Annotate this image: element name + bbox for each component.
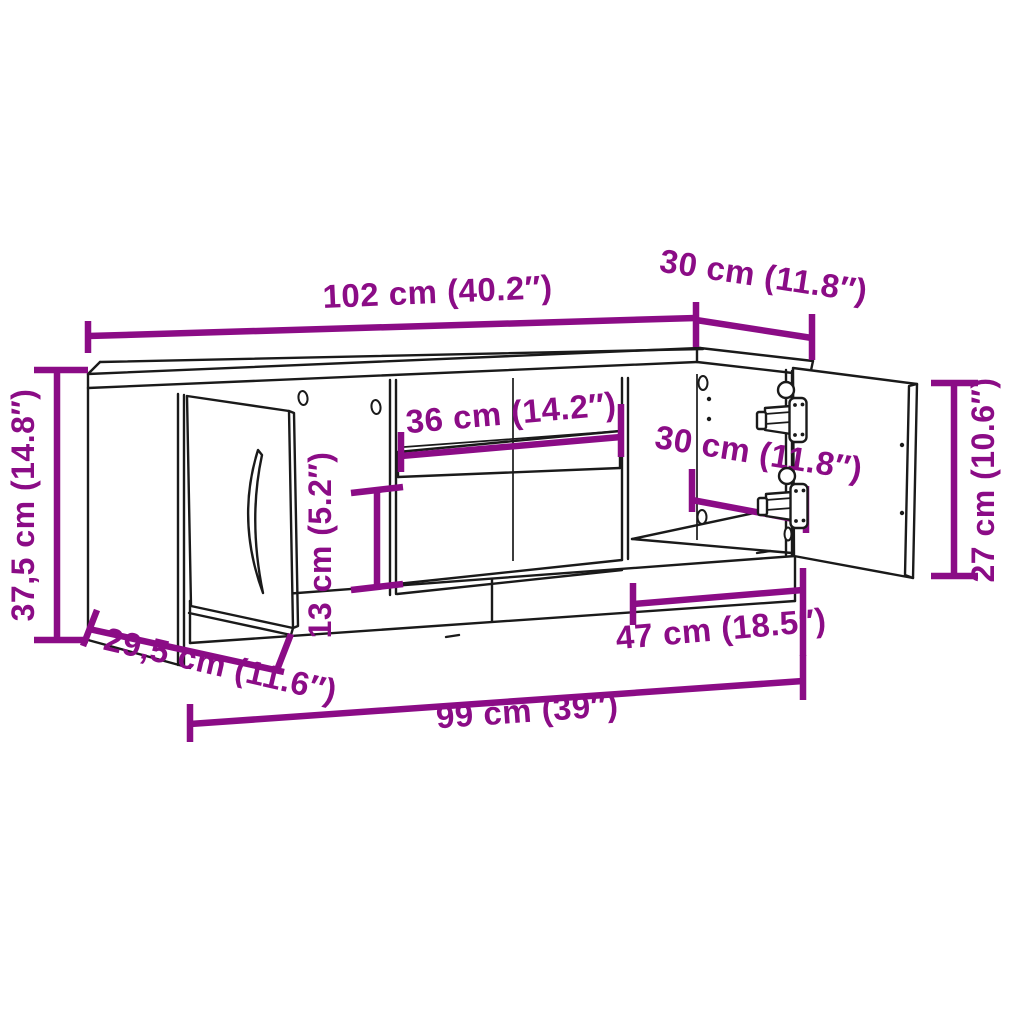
pin-hole-icon [900,443,904,447]
diagram-canvas: 102 cm (40.2″) 30 cm (11.8″) 37,5 cm (14… [0,0,1024,1024]
dim-top-width-label: 102 cm (40.2″) [322,268,554,315]
dim-shelf-width: 36 cm (14.2″) [401,385,621,472]
dim-overall-height: 37,5 cm (14.8″) [5,370,88,640]
product-dimension-diagram: 102 cm (40.2″) 30 cm (11.8″) 37,5 cm (14… [0,0,1024,1024]
dim-overall-height-label: 37,5 cm (14.8″) [5,389,41,622]
cam-hole-icon [785,528,792,541]
dim-shelf-width-label: 36 cm (14.2″) [404,385,618,440]
dim-top-width: 102 cm (40.2″) [88,268,696,353]
left-door [187,396,298,635]
pin-hole-icon [707,417,711,421]
cam-hole-icon [371,399,382,414]
dim-door-height: 27 cm (10.6″) [931,377,1001,582]
dim-top-depth: 30 cm (11.8″) [657,242,870,360]
dim-door-height-label: 27 cm (10.6″) [965,377,1001,582]
dim-lower-gap-height: 13 cm (5.2″) [302,452,403,639]
dim-top-depth-label: 30 cm (11.8″) [657,242,870,310]
pin-hole-icon [707,397,711,401]
dim-base-width-label: 99 cm (39″) [435,686,620,736]
pin-hole-icon [900,511,904,515]
cam-hole-icon [698,510,707,524]
cam-hole-icon [699,376,708,390]
dim-lower-gap-height-label: 13 cm (5.2″) [302,452,338,639]
dim-right-section-width-label: 47 cm (18.5″) [614,601,828,656]
cam-hole-icon [298,390,309,405]
